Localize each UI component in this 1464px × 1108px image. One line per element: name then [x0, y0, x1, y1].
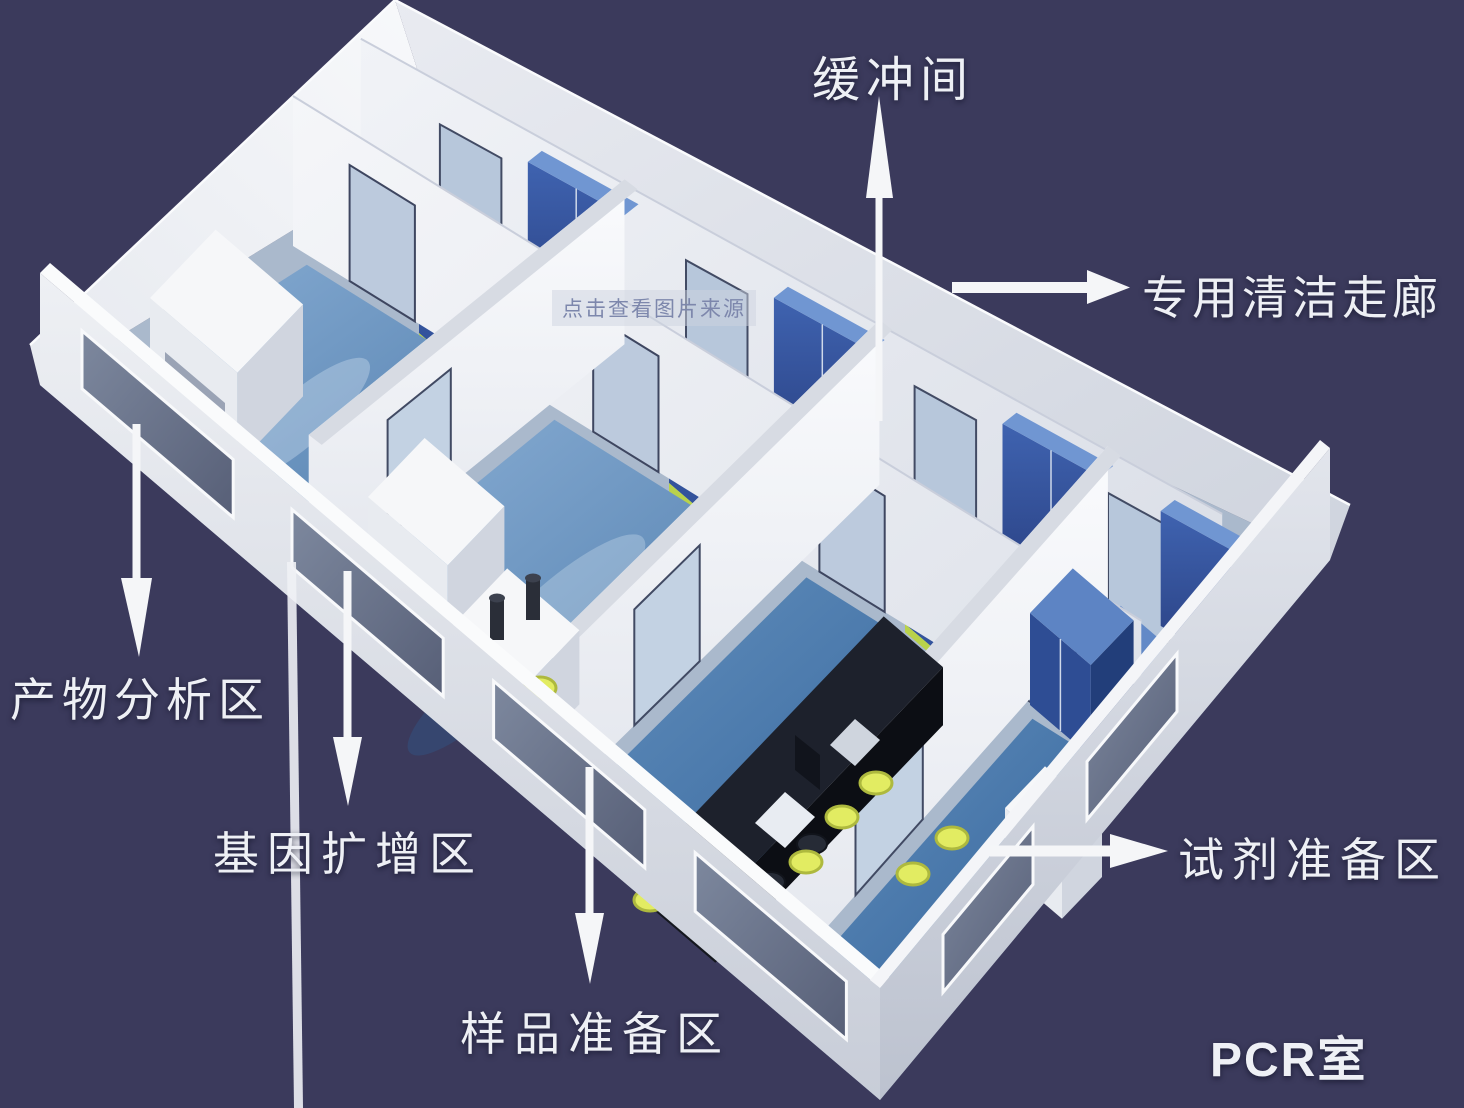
image-source-watermark[interactable]: 点击查看图片来源 — [552, 290, 756, 326]
pcr-lab-diagram: 缓冲间 专用清洁走廊 产物分析区 基因扩增区 样品准备区 试剂准备区 PCR室 … — [0, 0, 1464, 1108]
label-reagent-preparation: 试剂准备区 — [1178, 824, 1448, 890]
label-product-analysis: 产物分析区 — [10, 664, 270, 730]
clean-corridor-arrow — [952, 270, 1130, 304]
faucet — [526, 578, 540, 620]
lab-3d-illustration — [0, 0, 1464, 1108]
label-gene-amplification: 基因扩增区 — [213, 818, 483, 884]
label-buffer-room: 缓冲间 — [812, 40, 974, 110]
label-clean-corridor: 专用清洁走廊 — [1142, 262, 1442, 328]
diagram-title: PCR室 — [1210, 1020, 1367, 1090]
label-sample-preparation: 样品准备区 — [460, 998, 730, 1064]
faucet — [490, 598, 504, 640]
